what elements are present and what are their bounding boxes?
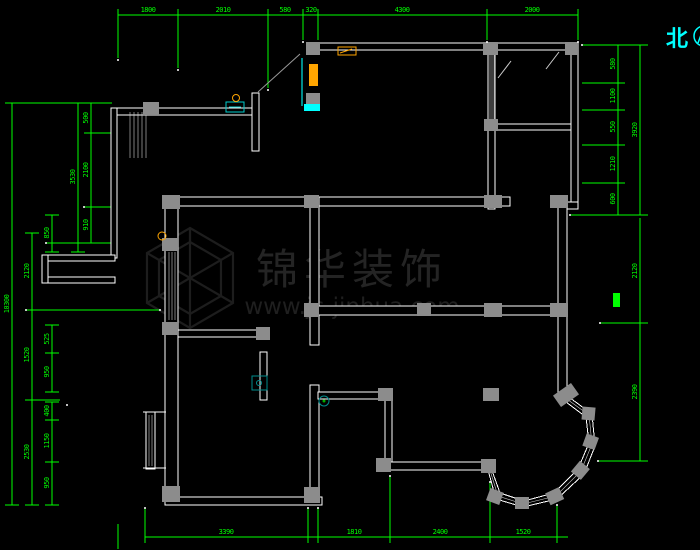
column-block <box>376 458 391 472</box>
wall-right-upper <box>571 43 578 209</box>
column-block <box>484 119 498 131</box>
wall-living-left-upper <box>310 197 319 345</box>
wall-wing-left <box>111 108 117 258</box>
watermark-brand-text: 锦华装饰 <box>256 245 448 294</box>
column-block <box>162 238 178 251</box>
dim-label: 320 <box>305 6 316 14</box>
column-block <box>162 486 180 502</box>
orange-cabinet <box>309 64 318 86</box>
dim-label: 580 <box>609 58 617 69</box>
dim-label: 1800 <box>141 6 156 14</box>
dim-label: 4300 <box>395 6 410 14</box>
column-block <box>484 303 502 317</box>
column-block <box>143 102 159 115</box>
bay-window-glazing <box>489 397 592 504</box>
wall-mid-horizontal <box>310 306 567 315</box>
dim-label: 580 <box>279 6 290 14</box>
dim-label: 10300 <box>3 294 11 313</box>
dim-label: 3530 <box>69 169 77 184</box>
column-block <box>483 388 499 401</box>
bay-mullion <box>515 497 529 509</box>
column-block <box>304 195 319 208</box>
dim-label: 1100 <box>609 88 617 103</box>
dim-label: 550 <box>609 121 617 132</box>
dim-label: 2120 <box>631 263 639 278</box>
dim-label: 525 <box>43 333 51 344</box>
wall-main-horizontal <box>165 197 510 206</box>
toilet-dot <box>323 400 326 403</box>
dim-label: 600 <box>609 193 617 204</box>
column-block <box>304 487 320 503</box>
north-compass-icon <box>694 26 700 46</box>
wall-right-lower <box>558 197 567 397</box>
wall-interior-d <box>385 392 392 467</box>
column-block <box>483 42 498 55</box>
dim-label: 2530 <box>23 444 31 459</box>
cad-floorplan-viewport: 锦华装饰 www.js-jinhua.com <box>0 0 700 550</box>
dim-label: 3920 <box>631 122 639 137</box>
window-left-bay <box>146 412 155 469</box>
column-block <box>550 195 568 208</box>
north-label: 北 <box>666 27 688 52</box>
bay-window-inner <box>490 399 589 501</box>
bay-mullion <box>545 487 564 505</box>
bay-mullion <box>581 407 595 421</box>
dim-label: 400 <box>43 405 51 416</box>
door-swing-mark <box>546 52 559 69</box>
column-block <box>304 303 319 317</box>
dim-label: 1150 <box>43 433 51 448</box>
dim-label: 2000 <box>525 6 540 14</box>
bay-mullion <box>553 383 579 407</box>
wall-ledge-top <box>42 255 115 261</box>
dim-label: 1520 <box>23 347 31 362</box>
dim-label: 1210 <box>609 156 617 171</box>
wall-interior-tr <box>495 124 571 130</box>
column-block <box>565 42 578 55</box>
dim-label-blob <box>613 293 620 307</box>
door-swing-mark <box>498 61 511 78</box>
wall-ledge-left <box>42 255 48 283</box>
wall-bottom-mid <box>385 462 488 470</box>
dim-label: 1520 <box>516 528 531 536</box>
door-leaf <box>258 54 300 92</box>
bay-mullion <box>486 488 504 505</box>
column-block <box>162 322 178 335</box>
dim-label: 1810 <box>347 528 362 536</box>
dim-label: 950 <box>43 477 51 488</box>
bay-mullion <box>571 461 590 480</box>
column-block <box>162 195 180 209</box>
wall-bottom-left <box>165 497 322 505</box>
dim-label: 2100 <box>82 162 90 177</box>
column-block <box>481 459 496 473</box>
cyan-counter <box>304 104 320 111</box>
dim-label: 2010 <box>216 6 231 14</box>
column-block <box>256 327 270 340</box>
wall-interior-a <box>178 330 264 337</box>
dim-label: 500 <box>82 112 90 123</box>
column-block <box>550 303 568 317</box>
dim-label: 2390 <box>631 384 639 399</box>
dim-label: 850 <box>43 227 51 238</box>
dim-label: 910 <box>82 219 90 230</box>
column-block <box>484 195 502 208</box>
dim-label: 950 <box>43 366 51 377</box>
dim-label: 3390 <box>219 528 234 536</box>
dim-label: 2120 <box>23 263 31 278</box>
orange-circle-symbol <box>233 95 240 102</box>
column-block <box>306 42 320 55</box>
wall-door-stub <box>252 93 259 151</box>
floorplan-drawing: 锦华装饰 www.js-jinhua.com <box>0 0 700 550</box>
column-block <box>417 303 431 316</box>
bay-mullion <box>582 433 599 450</box>
walls-layer <box>42 43 595 507</box>
dim-label: 2400 <box>433 528 448 536</box>
north-indicator: 北 <box>666 26 700 52</box>
wall-ledge-bottom <box>42 277 115 283</box>
column-block <box>378 388 393 401</box>
watermark-logo-icon <box>147 228 233 328</box>
